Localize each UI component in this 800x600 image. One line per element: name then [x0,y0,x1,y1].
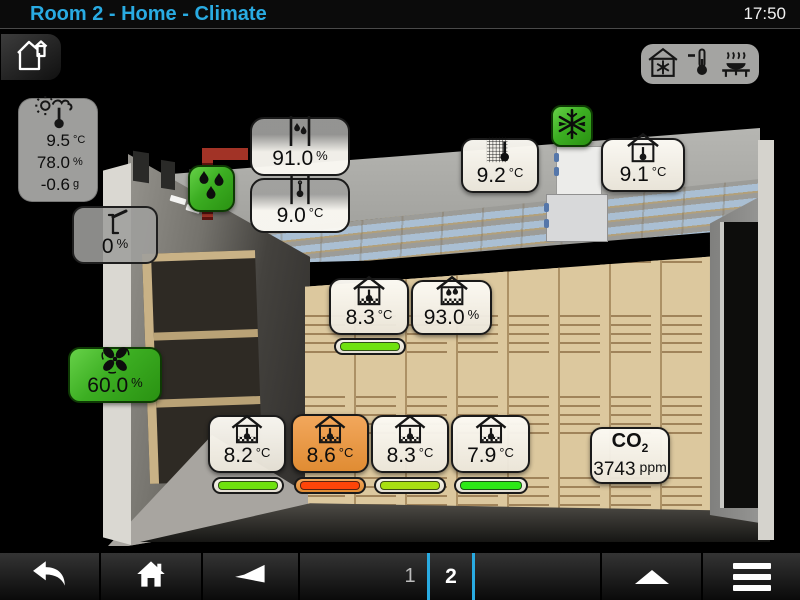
page-divider [472,553,475,600]
product-humidity-button[interactable]: 93.0% [411,280,492,335]
menu-button[interactable] [703,553,800,600]
bar-fill [340,342,400,351]
page-1[interactable]: 1 [393,553,427,600]
coil-temperature-value: 9.2°C [477,165,524,189]
duct-thermometer-icon [283,175,317,205]
product-sensor-4-button[interactable]: 7.9°C [451,415,530,473]
product-house-thermometer-icon [472,414,510,445]
outside-weather-panel[interactable]: 9.5 °C 78.0 % -0.6 g [18,98,98,202]
hatch-value: 0% [102,236,128,260]
heater-coil [202,148,248,160]
product-house-thermometer-icon [311,414,349,445]
product-house-drops-icon [432,275,472,307]
outer-wall-right [758,140,774,540]
wall-vent-slot [133,151,149,184]
page-title: Room 2 - Home - Climate [0,3,267,26]
home-outline-icon [11,36,51,79]
coil-thermometer-icon [483,135,517,165]
product-house-thermometer-icon [391,414,429,445]
header-bar: Room 2 - Home - Climate 17:50 [0,0,800,29]
bar-fill [300,481,360,490]
house-snowflake-icon [647,46,679,83]
outside-humidity: 78.0 % [25,153,91,175]
product-sensor-2-button[interactable]: 8.6°C [291,414,369,473]
sensor-value: 8.3°C [387,445,434,469]
bar-fill [380,481,440,490]
shelf [156,396,260,408]
alarm-horn-button[interactable] [203,553,298,600]
outside-temperature: 9.5 °C [25,131,91,153]
up-triangle-icon [635,570,669,584]
page-2-active[interactable]: 2 [430,553,472,600]
sensor-3-bar [374,477,446,494]
duct-humidity-button[interactable]: 91.0% [250,117,350,176]
product-humidity-value: 93.0% [424,307,479,331]
bar-fill [218,481,278,490]
sensor-1-bar [212,477,284,494]
product-sensor-3-button[interactable]: 8.3°C [371,415,449,473]
duct-temperature-button[interactable]: 9.0°C [250,178,350,233]
duct-temperature-value: 9.0°C [277,205,324,229]
humidifier-active-button[interactable] [188,165,235,212]
menu-icon [733,563,771,591]
air-hatch-button[interactable]: 0% [72,206,158,264]
co2-button[interactable]: CO2 3743ppm [590,427,670,484]
product-sensor-1-button[interactable]: 8.2°C [208,415,286,473]
co2-value: 3743ppm [593,459,667,481]
clock: 17:50 [743,4,800,24]
thermometer-minus-icon [684,46,714,83]
house-thermometer-icon [623,132,663,164]
sensor-2-bar [294,477,366,494]
product-house-thermometer-icon [228,414,266,445]
cooler-pipe [554,167,559,176]
fan-value: 60.0% [87,375,142,399]
fan-icon [98,343,132,375]
cooler-pipe [554,153,559,162]
cooling-unit-bottom [546,194,608,242]
scroll-up-button[interactable] [602,553,701,600]
cooler-pipe [544,203,549,212]
room-temperature-button[interactable]: 9.1°C [601,138,685,192]
shelf [154,329,258,341]
sun-cloud-thermometer-icon [32,95,84,131]
wall-vent-slot [161,160,175,190]
nav-home-button[interactable] [101,553,201,600]
fan-button[interactable]: 60.0% [68,347,162,403]
cooling-active-button[interactable] [551,105,593,147]
outside-moisture-delta: -0.6 g [25,175,91,197]
cooler-pipe [544,219,549,228]
page-indicator[interactable]: 1 2 [300,553,600,600]
duct-drops-icon [282,114,318,148]
product-house-thermometer-icon [349,275,389,307]
bottom-navbar: 1 2 [0,553,800,600]
horn-icon [234,562,268,591]
vent-flap-icon [100,208,130,236]
product-temperature-button[interactable]: 8.3°C [329,278,409,335]
sensor-4-bar [454,477,528,494]
back-arrow-icon [32,560,68,593]
sensor-value: 7.9°C [467,445,514,469]
sensor-value: 8.6°C [307,445,354,469]
climate-mode-indicators[interactable] [641,44,759,84]
steam-table-icon [719,46,753,83]
water-drops-icon [195,169,229,208]
cooling-unit-top [556,146,602,198]
room-temperature-value: 9.1°C [620,164,667,188]
snowflake-icon [556,108,588,145]
coil-temperature-button[interactable]: 9.2°C [461,138,539,193]
home-icon [135,559,167,594]
back-button[interactable] [0,553,99,600]
sensor-value: 8.2°C [224,445,271,469]
product-temperature-bar [334,338,406,355]
home-overview-button[interactable] [0,33,62,81]
bar-fill [460,481,522,490]
co2-label: CO2 [612,430,649,459]
duct-humidity-value: 91.0% [272,148,327,172]
product-temperature-value: 8.3°C [346,307,393,331]
climate-screen: Room 2 - Home - Climate 17:50 [0,0,800,600]
